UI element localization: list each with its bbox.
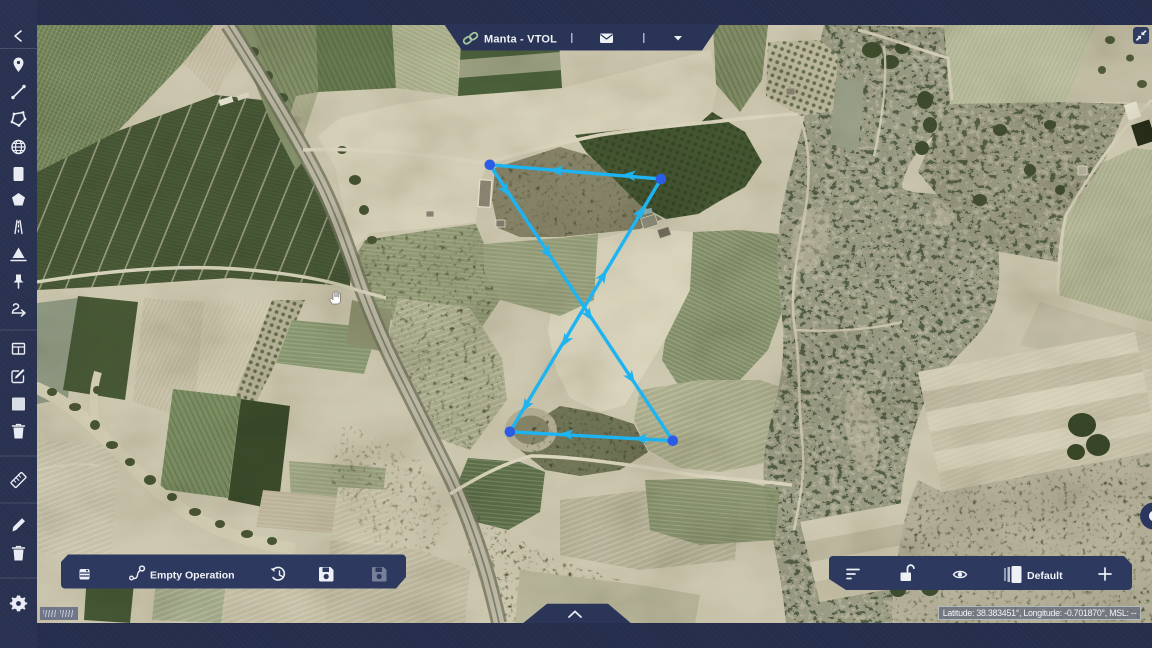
- svg-text:Empty Operation: Empty Operation: [150, 570, 235, 582]
- svg-text:Default: Default: [1027, 570, 1063, 582]
- svg-text:Manta - VTOL: Manta - VTOL: [484, 34, 557, 46]
